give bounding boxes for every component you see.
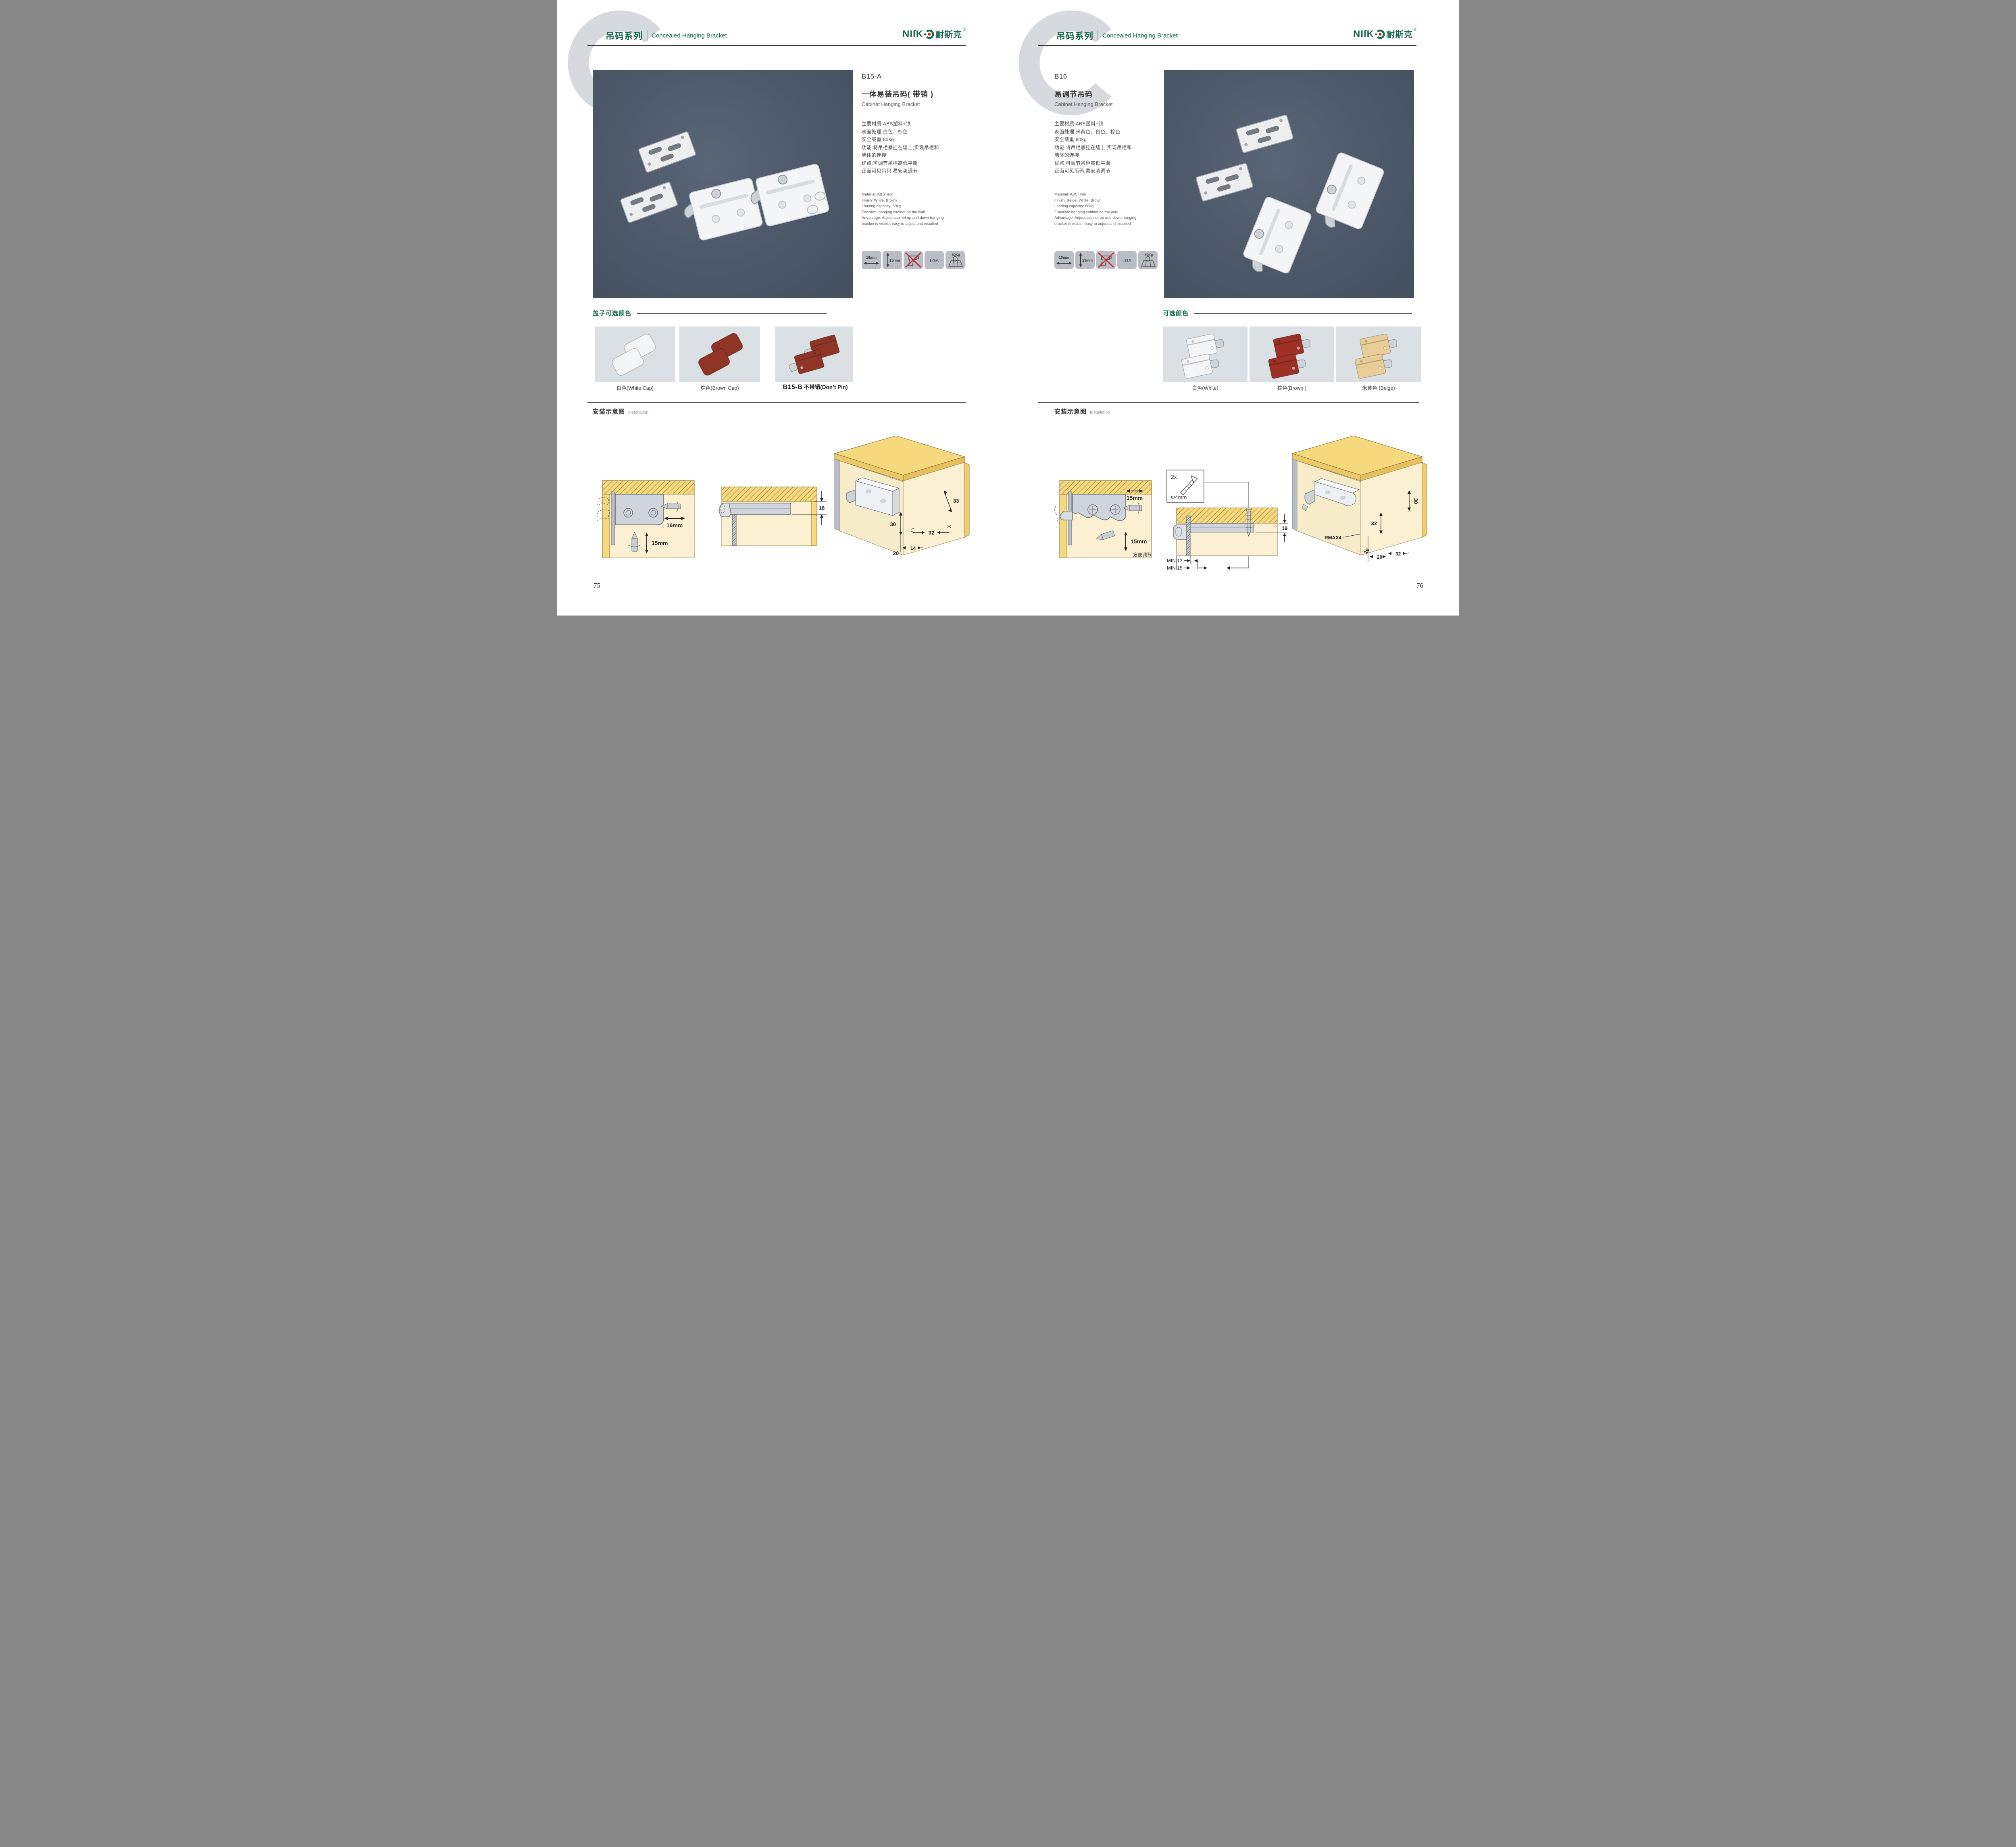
color-option-caption: 白色(White Cap) xyxy=(595,384,675,391)
panel-height-icon: 15mm xyxy=(883,251,902,269)
product-name: 易调节吊码 Cabinet Hanging Bracket xyxy=(1054,89,1113,107)
width-dimension: 16mm xyxy=(664,517,685,528)
installation-title-cn: 安装示意图 xyxy=(593,407,625,416)
white-cap xyxy=(610,333,657,377)
width-label: 16mm xyxy=(666,522,683,528)
spec-line: 表面处理:米黄色、白色、棕色 xyxy=(1054,128,1132,136)
b15b-code: B15-B xyxy=(783,384,803,391)
header-divider xyxy=(1098,30,1098,41)
product-code: B16 xyxy=(1054,73,1067,81)
height-value: 15mm xyxy=(889,258,900,262)
dim-32v: 32 xyxy=(1371,520,1377,526)
series-header: 吊码系列 Concealed Hanging Bracket xyxy=(606,28,727,43)
min15-label: MIN.15 xyxy=(1167,565,1183,571)
color-option-card-white xyxy=(595,327,675,382)
color-option-caption: 白色(White) xyxy=(1163,384,1248,391)
product-name-en: Cabinet Hanging Bracket xyxy=(862,101,933,107)
product-name-en: Cabinet Hanging Bracket xyxy=(1054,101,1113,107)
installation-diagram-isometric: 30 32 RMAX4 19 20 32 xyxy=(1289,433,1428,564)
color-options-header: 盖子可选颜色 xyxy=(593,309,827,317)
rail-cross-section xyxy=(1186,516,1190,555)
color-option-caption: 棕色(Brown Cap) xyxy=(679,384,760,391)
catalog-spread: 吊码系列 Concealed Hanging Bracket NIſK 耐斯克 … xyxy=(557,0,1459,616)
wall-rail xyxy=(1196,114,1293,201)
page-75: 吊码系列 Concealed Hanging Bracket NIſK 耐斯克 … xyxy=(557,0,1008,616)
spec-line: Advantage: Adjust cabinet up and down ha… xyxy=(1054,215,1136,221)
color-options-rule xyxy=(1194,313,1412,314)
color-options-header: 可选颜色 xyxy=(1163,309,1412,317)
spec-line: 优点:可调节吊柜高低平衡 xyxy=(862,160,939,168)
spec-line: 墙体的连接 xyxy=(1054,152,1132,160)
color-option-card-white xyxy=(1163,327,1248,382)
color-option-caption: 米黄色 (Beige) xyxy=(1336,384,1421,391)
spec-line: bracket is visible, easy to adjust and i… xyxy=(862,221,943,227)
brand-logo-ring-icon xyxy=(924,29,935,40)
load-value: 80Kg xyxy=(952,253,960,257)
color-option-card-b15b xyxy=(775,327,853,382)
installation-header: 安装示意图 Installation xyxy=(1054,407,1110,416)
dim-30: 30 xyxy=(890,521,896,527)
series-header: 吊码系列 Concealed Hanging Bracket xyxy=(1056,28,1178,43)
spec-line: Finish: Beige, White, Brown xyxy=(1054,198,1136,204)
color-options-title: 可选颜色 xyxy=(1163,309,1189,317)
brown-cap xyxy=(697,332,744,377)
cert-label: LGA xyxy=(1123,258,1132,263)
page-number: 76 xyxy=(1416,582,1423,590)
color-options-rule xyxy=(637,313,827,314)
cert-label: LGA xyxy=(930,258,939,263)
section-divider xyxy=(1038,402,1419,403)
dim-20: 20 xyxy=(1377,554,1383,560)
width-value: 10mm xyxy=(1059,256,1069,260)
spec-line: bracket is visible, easy to adjust and i… xyxy=(1054,221,1136,227)
load-icon: 80Kg xyxy=(1138,251,1158,269)
installation-diagram-front: 15mm 15mm 方便调节 xyxy=(1054,476,1157,562)
load-icon: 80Kg xyxy=(946,251,965,269)
depth-label: 19 xyxy=(1282,525,1287,531)
width-label: 15mm xyxy=(1127,495,1143,501)
hanging-bracket xyxy=(1239,152,1385,282)
spec-line: Function: hanging cabinet on the wall xyxy=(862,210,943,216)
specs-cn: 主要材质:ABS塑料+铁 表面处理:白色、棕色 安全载重:80kg 功能:将吊柜… xyxy=(862,120,939,175)
installation-diagram-screw: 2x Φ4mm xyxy=(1166,468,1291,571)
b15b-bracket xyxy=(787,335,840,376)
brown-bracket xyxy=(1268,332,1312,379)
spec-line: Loading capacity: 80kg xyxy=(862,204,943,210)
panel-width-icon: 10mm xyxy=(1054,251,1074,269)
installation-title-en: Installation xyxy=(1090,410,1110,415)
header-rule xyxy=(587,45,966,46)
feature-icons: 16mm 15mm LGA 80Kg xyxy=(862,251,965,269)
product-name-cn: 一体易装吊码( 带销 ) xyxy=(862,89,933,99)
screw-diameter: Φ4mm xyxy=(1171,494,1187,500)
screw-spec-box: 2x Φ4mm xyxy=(1167,470,1204,502)
installation-diagram-front: 16mm 15mm xyxy=(597,476,700,562)
no-drill-icon xyxy=(904,251,923,269)
feature-icons: 10mm 15mm LGA 80Kg xyxy=(1054,251,1158,269)
dim-30: 30 xyxy=(1413,498,1419,504)
product-photo-b15a xyxy=(593,70,853,298)
header-rule xyxy=(1038,45,1416,46)
no-drill-icon xyxy=(1096,251,1116,269)
specs-en: Material: ABS+iron Finish: Beige, White,… xyxy=(1054,192,1136,227)
brand-logo-text-en: NIſK xyxy=(1353,29,1374,40)
spec-line: Loading capacity: 80kg xyxy=(1054,204,1136,210)
b15b-label: 不带销(Don’t Pin) xyxy=(804,384,848,390)
dim-33: 33 xyxy=(953,498,959,504)
spec-line: 表面处理:白色、棕色 xyxy=(862,128,939,136)
spec-line: 正面可见吊码,易安装调节 xyxy=(1054,167,1132,175)
hanging-bracket xyxy=(680,163,830,243)
min12-label: MIN.12 xyxy=(1167,558,1183,564)
brand-logo-text-cn: 耐斯克 xyxy=(1386,28,1413,40)
color-options-title: 盖子可选颜色 xyxy=(593,309,631,317)
height-label: 15mm xyxy=(652,540,668,546)
beige-bracket xyxy=(1355,332,1399,379)
page-number: 75 xyxy=(594,582,600,590)
color-option-card-brown xyxy=(1250,327,1334,382)
spec-line: Material: ABS+iron xyxy=(862,192,943,198)
bracket-plate xyxy=(615,494,664,525)
brand-logo-text-cn: 耐斯克 xyxy=(935,28,962,40)
spec-line: 功能:将吊柜悬挂在墙上,实现吊柜和 xyxy=(1054,144,1132,152)
white-bracket xyxy=(1181,332,1225,379)
section-divider xyxy=(587,402,966,403)
color-option-card-beige xyxy=(1336,327,1421,382)
spec-line: 正面可见吊码,易安装调节 xyxy=(862,167,939,175)
brand-logo-ring-icon xyxy=(1375,29,1385,40)
dim-32: 32 xyxy=(929,530,934,536)
spec-line: Finish: White, Brown xyxy=(862,198,943,204)
spec-line: 墙体的连接 xyxy=(862,152,939,160)
specs-en: Material: ABS+iron Finish: White, Brown … xyxy=(862,192,943,227)
height-label: 15mm xyxy=(1131,538,1147,545)
dim-20: 20 xyxy=(893,550,899,556)
min-dimensions: MIN.12 MIN.15 xyxy=(1167,556,1249,571)
brand-logo: NIſK 耐斯克 ® xyxy=(902,27,973,41)
series-title-cn: 吊码系列 xyxy=(1056,29,1093,42)
width-value: 16mm xyxy=(866,256,877,260)
registered-mark: ® xyxy=(963,27,966,31)
page-76: 吊码系列 Concealed Hanging Bracket NIſK 耐斯克 … xyxy=(1008,0,1459,616)
series-title-cn: 吊码系列 xyxy=(606,29,643,42)
brand-logo-text-en: NIſK xyxy=(902,29,923,40)
height-value: 15mm xyxy=(1082,258,1093,262)
spec-line: 安全载重:80kg xyxy=(862,136,939,144)
installation-diagram-isometric: 33 30 32 20 14 xyxy=(831,433,971,564)
spec-line: 安全载重:80kg xyxy=(1054,136,1132,144)
product-photo-b16 xyxy=(1164,70,1414,298)
installation-header: 安装示意图 Installation xyxy=(593,407,648,416)
series-title-en: Concealed Hanging Bracket xyxy=(1102,32,1178,39)
series-title-en: Concealed Hanging Bracket xyxy=(652,32,727,39)
spec-line: 主要材质:ABS塑料+铁 xyxy=(862,120,939,128)
installation-diagram-side: 18 xyxy=(719,483,827,549)
color-option-caption: 棕色(Brown ) xyxy=(1250,384,1334,391)
dim-rmax: RMAX4 xyxy=(1325,535,1341,541)
color-option-caption-b15b: B15-B 不带销(Don’t Pin) xyxy=(763,383,868,391)
specs-cn: 主要材质:ABS塑料+铁 表面处理:米黄色、白色、棕色 安全载重:80kg 功能… xyxy=(1054,120,1132,175)
product-name: 一体易装吊码( 带销 ) Cabinet Hanging Bracket xyxy=(862,89,933,107)
panel-height-icon: 15mm xyxy=(1075,251,1095,269)
width-dimension: 15mm xyxy=(1126,489,1143,501)
installation-title-cn: 安装示意图 xyxy=(1054,407,1087,416)
leader-line xyxy=(1204,482,1249,510)
cert-icon: LGA xyxy=(1117,251,1137,269)
panel-width-icon: 16mm xyxy=(862,251,881,269)
dim-32b: 32 xyxy=(1395,551,1401,557)
screw-qty: 2x xyxy=(1171,474,1177,480)
installation-title-en: Installation xyxy=(628,410,648,415)
product-name-cn: 易调节吊码 xyxy=(1054,89,1113,99)
registered-mark: ® xyxy=(1414,27,1416,31)
dim-14: 14 xyxy=(910,545,916,551)
spec-line: Material: ABS+iron xyxy=(1054,192,1136,198)
product-code: B15-A xyxy=(862,73,882,81)
brand-logo: NIſK 耐斯克 ® xyxy=(1353,27,1424,41)
spec-line: Function: hanging cabinet on the wall xyxy=(1054,210,1136,216)
adjust-note: 方便调节 xyxy=(1133,552,1152,557)
spec-line: 主要材质:ABS塑料+铁 xyxy=(1054,120,1132,128)
depth-label: 18 xyxy=(819,505,825,511)
cert-icon: LGA xyxy=(925,251,944,269)
header-divider xyxy=(647,30,648,41)
spec-line: 优点:可调节吊柜高低平衡 xyxy=(1054,160,1132,168)
load-value: 80Kg xyxy=(1145,253,1153,257)
spec-line: 功能:将吊柜悬挂在墙上,实现吊柜和 xyxy=(862,144,939,152)
color-option-card-brown xyxy=(679,327,760,382)
spec-line: Advantage: Adjust cabinet up and down ha… xyxy=(862,215,943,221)
rail-cross-section xyxy=(732,514,736,546)
